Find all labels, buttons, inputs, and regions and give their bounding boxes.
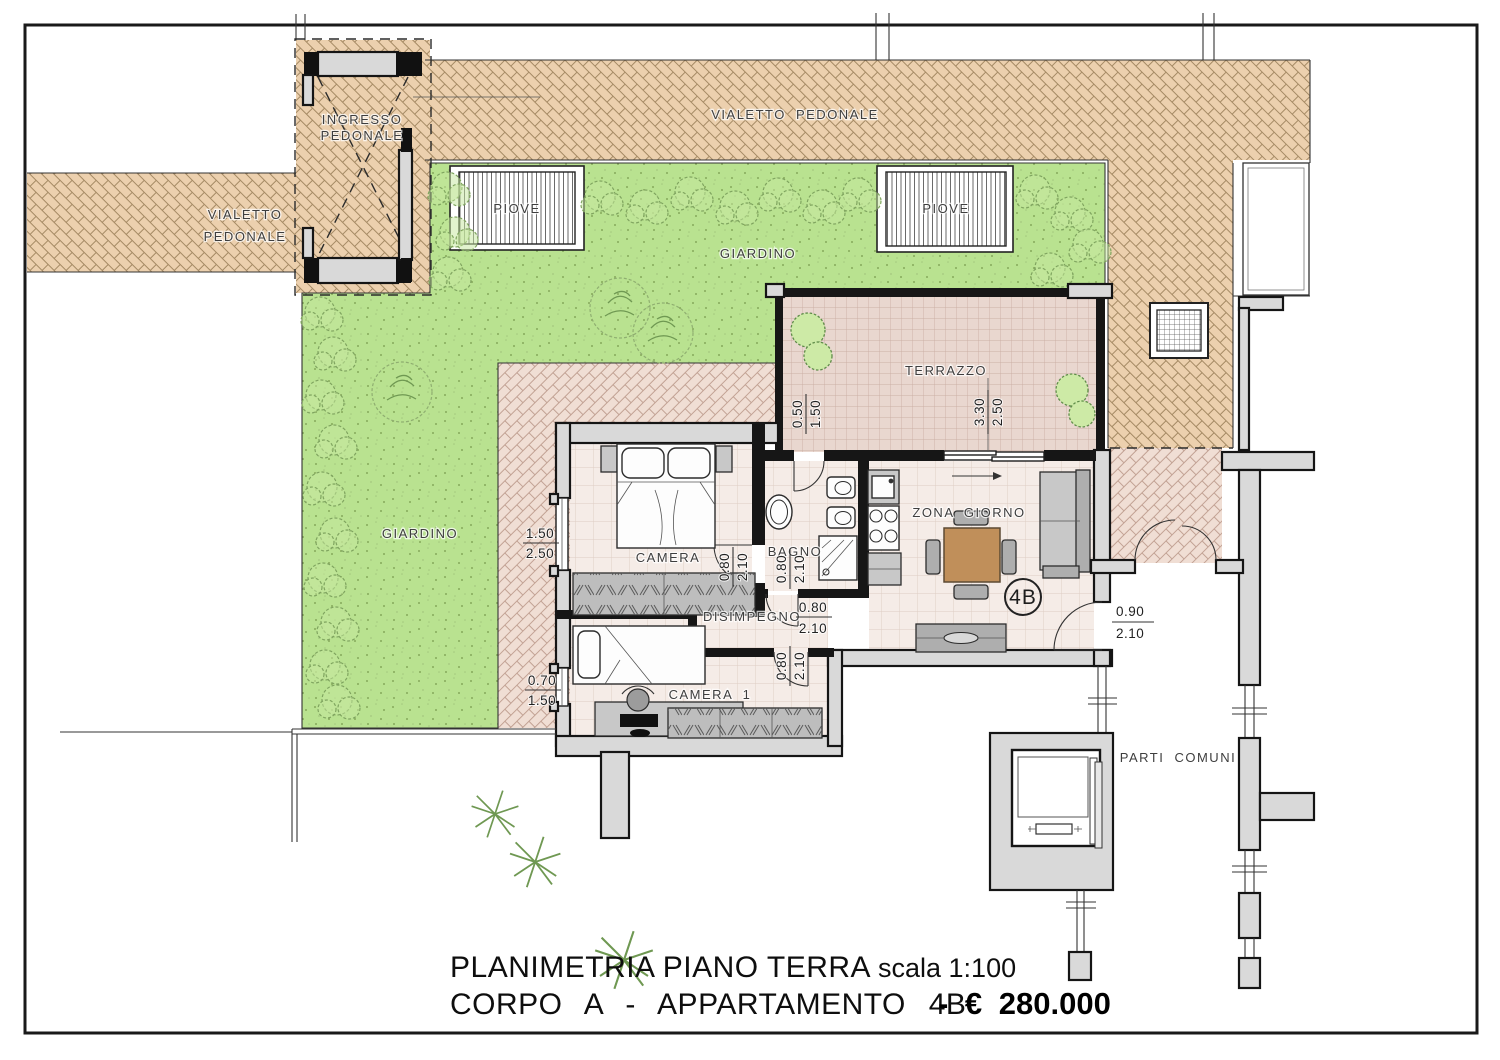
property-boundary (60, 729, 556, 842)
svg-text:0.50: 0.50 (790, 400, 805, 428)
title-block: PLANIMETRIA PIANO TERRA scala 1:100 CORP… (450, 951, 1111, 1021)
label-terrazzo: TERRAZZO (905, 363, 987, 378)
svg-text:2.50: 2.50 (526, 546, 554, 561)
svg-text:1.50: 1.50 (528, 693, 556, 708)
svg-text:2.10: 2.10 (792, 555, 807, 583)
walkway-left (27, 173, 296, 272)
title-price: - € 280.000 (938, 986, 1111, 1021)
label-disimpegno: DISIMPEGNO (703, 609, 801, 624)
title-scale: scala 1:100 (878, 953, 1016, 983)
grate (1150, 303, 1208, 358)
svg-text:1.50: 1.50 (526, 526, 554, 541)
svg-text:2.10: 2.10 (792, 652, 807, 680)
label-giardino-left: GIARDINO (382, 526, 458, 541)
svg-text:0.80: 0.80 (799, 600, 827, 615)
dim-camera-window: 1.50 2.50 (523, 526, 559, 561)
apartment-entry-court (1108, 448, 1222, 563)
elevator (990, 733, 1113, 890)
kitchen-units (868, 470, 901, 585)
label-parti-comuni: PARTI COMUNI (1120, 750, 1236, 765)
label-piove-right: PIOVE (922, 201, 969, 216)
svg-text:0.70: 0.70 (528, 673, 556, 688)
floor-plan-page: PIOVE PIOVE INGRESSO PEDONALE VIALETTO P… (0, 0, 1500, 1060)
svg-text:0.80: 0.80 (774, 555, 789, 583)
label-camera: CAMERA (636, 550, 701, 565)
dim-entrance-door: 0.90 2.10 (1112, 604, 1154, 641)
label-vialetto-top: VIALETTO PEDONALE (711, 107, 879, 122)
svg-text:1.50: 1.50 (808, 400, 823, 428)
wall-projection-ticks-top (296, 13, 1214, 60)
svg-text:2.10: 2.10 (735, 553, 750, 581)
below-elevator-lines (1066, 890, 1096, 980)
label-ingresso-1: INGRESSO (322, 112, 403, 127)
svg-text:0.90: 0.90 (1116, 604, 1144, 619)
label-ingresso-2: PEDONALE (321, 128, 404, 143)
label-giardino-top: GIARDINO (720, 246, 796, 261)
label-piove-left: PIOVE (493, 201, 540, 216)
right-side-structures (1222, 163, 1314, 988)
title-line1: PLANIMETRIA PIANO TERRA (450, 951, 871, 984)
svg-text:2.10: 2.10 (1116, 626, 1144, 641)
svg-text:2.50: 2.50 (990, 398, 1005, 426)
svg-text:2.10: 2.10 (799, 621, 827, 636)
dim-terrace-door: 0.50 1.50 (790, 394, 823, 434)
floor-plan-drawing: PIOVE PIOVE INGRESSO PEDONALE VIALETTO P… (0, 0, 1500, 1060)
svg-text:3.30: 3.30 (972, 398, 987, 426)
label-vialetto-left-1: VIALETTO (208, 207, 283, 222)
apartment-to-elevator-link (1088, 666, 1117, 733)
dim-camera-door: 0.80 2.10 (717, 547, 750, 587)
svg-text:0.80: 0.80 (774, 652, 789, 680)
label-zona-giorno: ZONA GIORNO (912, 505, 1025, 520)
title-line2: CORPO A - APPARTAMENTO 4B (450, 988, 966, 1021)
dim-camera1-window: 0.70 1.50 (525, 673, 561, 708)
piove-right: PIOVE (877, 166, 1013, 252)
unit-badge-text: 4B (1009, 586, 1037, 609)
label-camera1: CAMERA 1 (669, 687, 752, 702)
dim-bagno-door: 0.80 2.10 (774, 549, 807, 589)
label-vialetto-left-2: PEDONALE (204, 229, 287, 244)
svg-text:0.80: 0.80 (717, 553, 732, 581)
dim-camera1-door: 0.80 2.10 (774, 646, 807, 686)
